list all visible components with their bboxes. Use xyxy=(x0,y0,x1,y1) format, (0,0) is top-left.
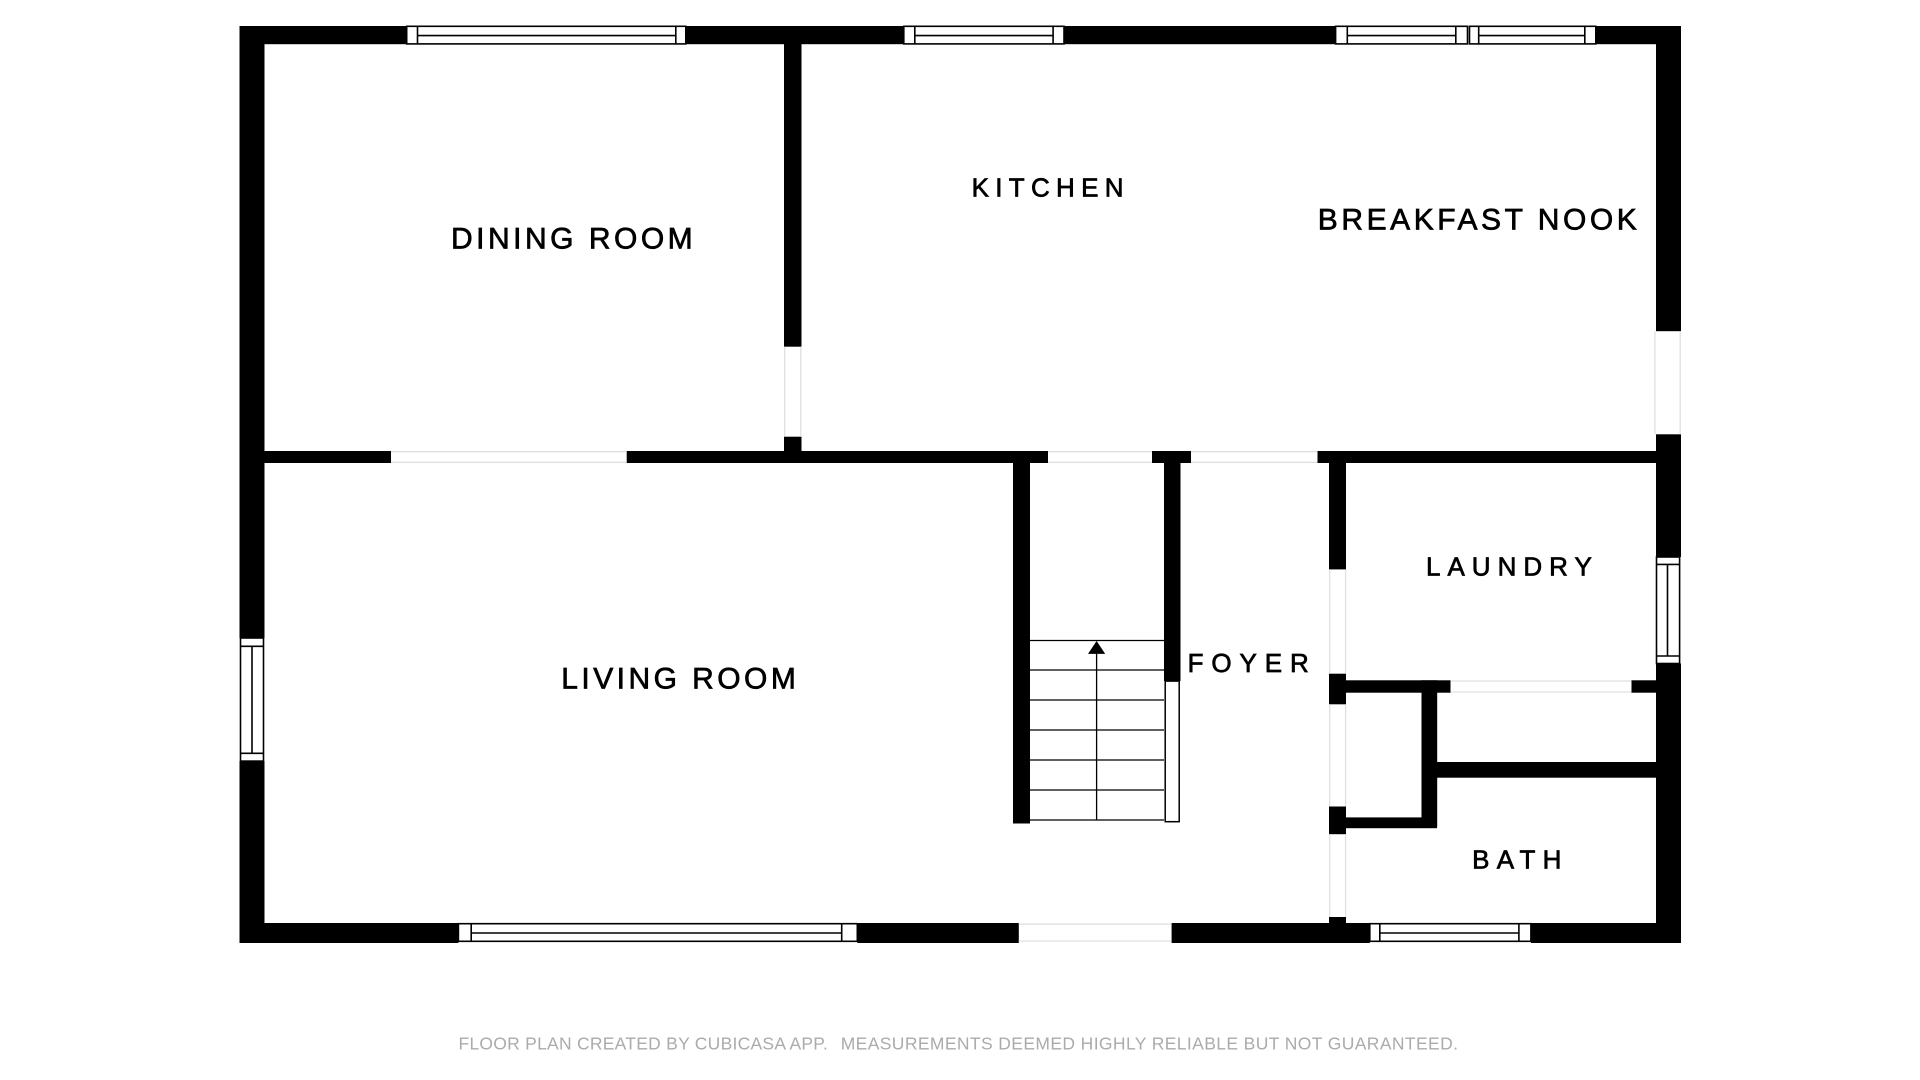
svg-text:FOYER: FOYER xyxy=(1188,648,1317,678)
svg-text:KITCHEN: KITCHEN xyxy=(972,172,1130,202)
svg-text:LAUNDRY: LAUNDRY xyxy=(1426,551,1599,581)
svg-text:BATH: BATH xyxy=(1472,844,1569,874)
svg-text:DINING ROOM: DINING ROOM xyxy=(451,222,696,255)
svg-text:MEASUREMENTS DEEMED HIGHLY REL: MEASUREMENTS DEEMED HIGHLY RELIABLE BUT … xyxy=(841,1034,1459,1054)
svg-text:FLOOR PLAN CREATED BY CUBICASA: FLOOR PLAN CREATED BY CUBICASA APP. xyxy=(459,1034,829,1054)
svg-text:BREAKFAST NOOK: BREAKFAST NOOK xyxy=(1318,204,1641,237)
svg-text:LIVING ROOM: LIVING ROOM xyxy=(561,662,799,695)
